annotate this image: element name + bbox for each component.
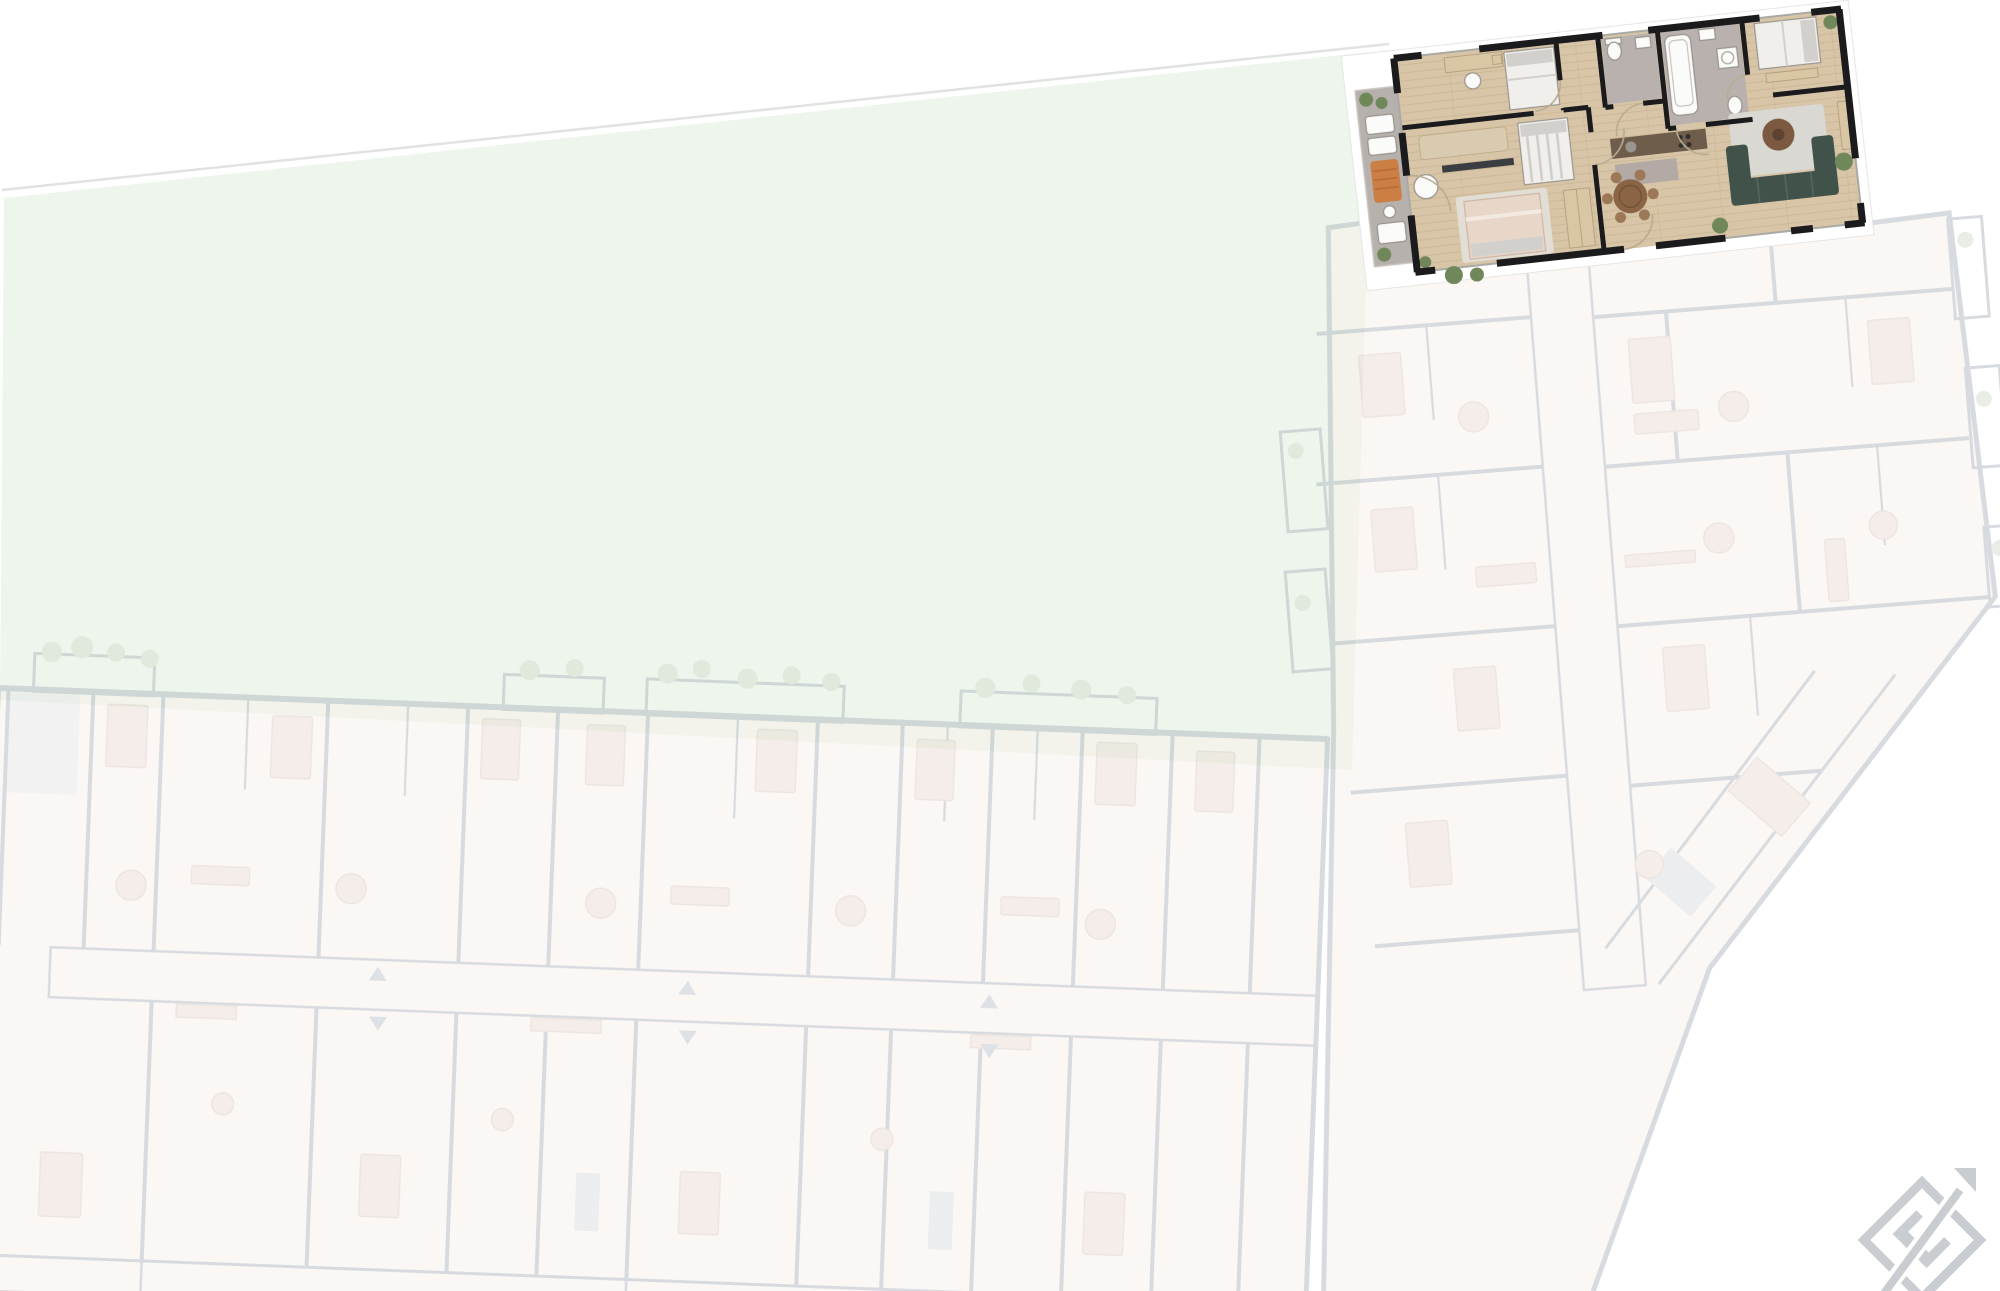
- balcony-chair: [1365, 114, 1395, 135]
- floor-plan-page: E: [0, 0, 2000, 1291]
- sink: [1635, 36, 1651, 49]
- bed: [1518, 118, 1575, 185]
- washing-machine: [1717, 47, 1739, 69]
- faded-stair-core: [7, 692, 81, 795]
- nightstand: [1492, 55, 1502, 65]
- balcony-chair: [1377, 221, 1407, 244]
- balcony-side-table: [1383, 205, 1396, 218]
- sink: [1698, 28, 1715, 41]
- site-plan-canvas: E: [0, 0, 2000, 1291]
- bed: [1754, 17, 1821, 70]
- bed: [1504, 47, 1560, 110]
- sun-lounger: [1370, 159, 1402, 204]
- faded-right-wing: [1235, 151, 2000, 1291]
- balcony-chair: [1367, 136, 1397, 156]
- courtyard-lawn: [0, 44, 1389, 770]
- bed-large: [1464, 193, 1546, 259]
- faded-lower-wing: [0, 633, 1330, 1291]
- compass-icon: E: [1864, 1168, 1980, 1291]
